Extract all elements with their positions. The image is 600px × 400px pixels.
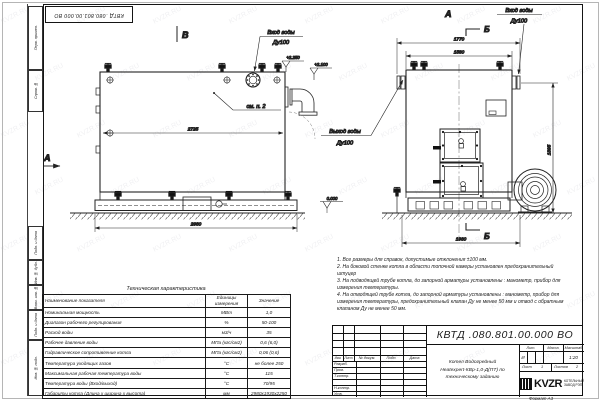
lower-door [433,163,483,198]
tb-product-name: Котел Водогрейный Heatexpert-КВр-1,0-Д(П… [426,344,519,397]
param-units: м3/ч [206,327,248,337]
param-units: °С [206,378,248,388]
tb-sheets-value: 2 [576,365,578,369]
col-header-units: Единицы измерения [206,294,248,307]
table-row: Рабочее давление водыМПа (кгс/см2)0,6 (6… [43,338,291,348]
side-hinge-3 [96,146,100,153]
product-line-2: Heatexpert-КВр-1,0-Д(ПТ) по [440,367,504,374]
note-4: 4. На отводящей трубе котла, до запорной… [337,292,572,312]
param-units: °С [206,368,248,378]
param-value: 115 [248,368,291,378]
tb-doc-number: КВТД .080.801.00.000 ВО [426,326,584,344]
sight-port [486,100,506,116]
view-label-b: В [182,30,189,40]
param-units: МПа (кгс/см2) [206,348,248,358]
front-drain-valve [394,187,400,213]
param-units: % [206,317,248,327]
tech-table-header-row: Наименование показателя Единицы измерени… [43,294,291,307]
tech-table: Наименование показателя Единицы измерени… [42,294,291,400]
tb-row-nkontr: Н.контр. [334,386,350,390]
company-name: КОТЕЛЬНЫЙ ЗАВОД РЭП [564,380,584,388]
tb-sheet-value: 1 [541,365,543,369]
dim-side-length: 2725 [187,127,199,132]
inlet-front-dn: Ду100 [510,19,528,25]
table-row: Максимальная рабочая температура воды°С1… [43,368,291,378]
dim-front-width-base: 1930 [456,237,467,242]
tb-col-izm: Изм. [333,355,343,361]
table-row: Номинальная мощностьМВт1,0 [43,307,291,317]
company-logo: KVZR КОТЕЛЬНЫЙ ЗАВОД РЭП [519,371,584,397]
param-units: МВт [206,307,248,317]
valve-icon [219,63,225,72]
tb-row-razrab: Разраб. [334,362,348,366]
burner-fan [508,169,556,212]
tech-characteristics: Техническая характеристика Наименование … [42,286,290,399]
company-name-line2: ЗАВОД РЭП [564,384,584,388]
valve-icon [115,191,121,200]
outlet-elbow [285,87,317,139]
inlet-flange-circle [246,73,260,87]
side-view [70,63,317,219]
dim-side-length-full: 2980 [190,222,202,227]
tb-lit-value: И [519,351,527,363]
tb-sheet-label: Лист [522,365,532,369]
table-row: Температура уходящих газов°Сне более 250 [43,358,291,368]
table-row: Габариты котла (Длина х ширина х высота)… [43,389,291,399]
table-row: Расход водым3/ч35 [43,327,291,337]
param-name: Диапазон рабочего регулирования [43,317,206,327]
title-block: Изм. Лист № докум. Подп. Дата Разраб. Пр… [332,325,583,396]
upper-door [433,129,480,162]
front-flange-left [397,76,405,89]
notes-block: 1. Все размеры для справок, допустимые о… [337,257,572,313]
param-value: 35 [248,327,291,337]
dim-front-width-body: 1560 [454,50,465,55]
valve-icon [169,191,175,200]
door-hinge [433,180,441,184]
side-view-annotations: В А см. п. 2 Вход воды Ду100 +2.250 [43,26,403,232]
see-item-callout: см. п. 2 [246,104,266,110]
tb-row-prov: Пров. [334,368,344,372]
valve-icon [421,61,427,70]
front-view [382,61,572,240]
lifting-lug-icon [223,76,231,84]
param-value: не более 250 [248,358,291,368]
note-1: 1. Все размеры для справок, допустимые о… [337,257,572,264]
product-line-1: Котел Водогрейный [449,359,496,366]
valve-icon [105,63,111,72]
valve-icon [226,191,232,200]
tb-scale-value: 1:20 [563,351,584,363]
col-header-value: Значение [248,294,291,307]
param-units: мм [206,389,248,399]
note-3: 3. На подводящей трубе котла, до запорно… [337,278,572,292]
tb-sheets-label: Листов [554,365,568,369]
table-row: Диапазон рабочего регулирования%50-100 [43,317,291,327]
side-body [100,72,285,192]
view-label-a-front: А [444,9,452,19]
outlet-dn: Ду100 [336,141,354,147]
ground-front [382,213,572,219]
param-value: 70/95 [248,378,291,388]
param-value: 50-100 [248,317,291,327]
outlet-label: Выход воды [329,129,360,135]
view-label-a-side: А [43,153,51,163]
dim-front-width-flanges: 1770 [454,37,465,42]
tb-lit-label: Лит. [519,344,543,351]
param-name: Температура воды (Вход/выход) [43,378,206,388]
param-name: Номинальная мощность [43,307,206,317]
elev-mid-value: +2.100 [314,62,328,67]
table-row: Температура воды (Вход/выход)°С70/95 [43,378,291,388]
side-hinge-1 [96,88,100,95]
ground-side [70,213,305,219]
dim-front-height: 1895 [547,144,552,155]
front-flange-right [512,76,520,89]
elev-top-value: +2.250 [286,55,300,60]
param-name: Температура уходящих газов [43,358,206,368]
tb-col-podp: Подп. [380,355,403,361]
tb-col-dokum: № докум. [354,355,380,361]
param-value: 0,6 (6,0) [248,338,291,348]
table-row: Гидравлическое сопротивление котлаМПа (к… [43,348,291,358]
tb-col-list: Лист [343,355,354,361]
elevation-marks [282,61,343,213]
inlet-front-label: Вход воды [505,8,532,14]
section-label-b-bottom: Б [484,232,490,241]
param-units: МПа (кгс/см2) [206,338,248,348]
param-name: Расход воды [43,327,206,337]
inlet-top-dn: Ду100 [272,40,290,46]
valve-icon [411,61,417,70]
col-header-name: Наименование показателя [43,294,206,307]
tech-table-title: Техническая характеристика [42,286,290,292]
valve-icon [285,191,291,200]
tb-mass-label: Масса [543,344,563,351]
param-name: Гидравлическое сопротивление котла [43,348,206,358]
valve-icon [259,63,265,72]
elev-zero-value: 0.000 [327,196,338,201]
lifting-lug-icon [106,76,114,84]
kvzr-logo-icon [519,378,532,390]
side-hinge-2 [96,106,100,113]
inlet-top-label: Вход воды [267,30,294,36]
valve-icon [497,61,503,70]
lifting-lug-icon [273,76,281,84]
param-value: 0,06 (0,6) [248,348,291,358]
tb-row-tkontr: Т.контр. [334,374,349,378]
tb-col-data: Дата [403,355,426,361]
param-name: Габариты котла (Длина х ширина х высота) [43,389,206,399]
format-label: Формат А3 [498,396,584,400]
side-base-frame [95,192,297,211]
product-line-3: техническому заданию [446,374,500,381]
param-value: 2980х1930х2250 [248,389,291,399]
drawing-sheet: KVZR.RUKVZR.RUKVZR.RUKVZR.RUKVZR.RUKVZR.… [0,0,600,400]
param-value: 1,0 [248,307,291,317]
tb-row-utv: Утв. [334,392,343,396]
door-hinge [433,146,441,150]
param-name: Рабочее давление воды [43,338,206,348]
valve-icon [275,63,281,72]
note-2: 2. На боковой стенке котла в области топ… [337,264,572,278]
param-name: Максимальная рабочая температура воды [43,368,206,378]
section-label-b-top: Б [484,25,490,34]
kvzr-logo-text: KVZR [534,378,562,390]
param-units: °С [206,358,248,368]
tb-scale-label: Масштаб [563,344,584,351]
